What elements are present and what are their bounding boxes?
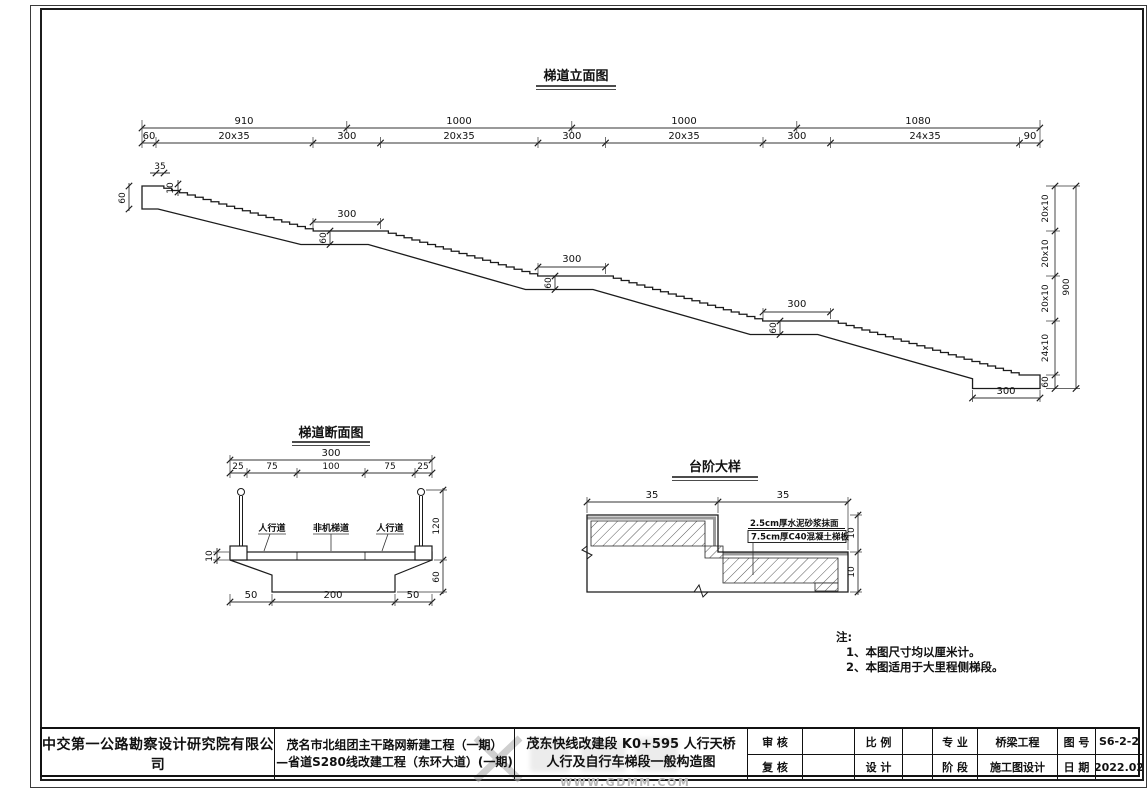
dim-label: 35	[154, 162, 165, 172]
dim-label: 90	[1024, 131, 1037, 142]
field-label-check: 复 核	[747, 754, 802, 779]
callout-label: 2.5cm厚水泥砂浆抹面	[750, 518, 839, 529]
dim-label: 35	[646, 490, 659, 501]
notes-header: 注:	[836, 630, 1056, 645]
lane-label: 人行道	[375, 522, 403, 534]
dim-label: 35	[777, 490, 790, 501]
deck-structure	[230, 546, 432, 592]
dim-label: 50	[245, 590, 258, 601]
dim-label: 1080	[905, 116, 930, 127]
drawing-title-line1: 茂东快线改建段 K0+595 人行天桥	[526, 736, 735, 754]
dim-label: 10	[847, 566, 857, 578]
field-value-drawing-no: S6-2-2	[1095, 729, 1142, 754]
dim-label: 60	[769, 322, 779, 334]
field-label-discipline: 专 业	[932, 729, 977, 754]
project-line1: 茂名市北组团主干路网新建工程（一期）	[286, 737, 502, 754]
dim-label: 100	[322, 462, 339, 472]
dim-label: 300	[562, 254, 581, 265]
stair-profile	[142, 186, 1040, 389]
dim-label: 24x10	[1041, 334, 1051, 363]
drawing-title: 茂东快线改建段 K0+595 人行天桥 人行及自行车梯段一般构造图	[514, 729, 747, 779]
field-label-date: 日 期	[1057, 754, 1095, 779]
notes-block: 注: 1、本图尺寸均以厘米计。 2、本图适用于大里程侧梯段。	[836, 630, 1056, 675]
dim-label: 20x35	[443, 131, 474, 142]
dim-label: 1000	[671, 116, 696, 127]
drawing-canvas: 梯道立面图 910 1000 1000 1080	[0, 0, 1148, 727]
project-line2: —省道S280线改建工程（东环大道）(一期)	[276, 754, 513, 771]
dim-label: 25	[417, 462, 428, 472]
dim-label: 300	[337, 209, 356, 220]
title-block: 中交第一公路勘察设计研究院有限公司 茂名市北组团主干路网新建工程（一期） —省道…	[40, 727, 1140, 777]
dim-label: 25	[232, 462, 243, 472]
dim-label: 60	[544, 277, 554, 289]
field-label-review: 审 核	[747, 729, 802, 754]
field-value-review	[802, 729, 854, 754]
dim-label: 300	[562, 131, 581, 142]
break-mark-bottom	[694, 585, 708, 597]
dim-label: 1000	[446, 116, 471, 127]
field-label-scale: 比 例	[854, 729, 902, 754]
dim-label: 300	[787, 299, 806, 310]
field-value-date: 2022.02	[1095, 754, 1142, 779]
step-detail-right-dims	[850, 512, 862, 595]
note-item: 2、本图适用于大里程侧梯段。	[836, 660, 1056, 675]
lane-label: 非机梯道	[313, 522, 349, 534]
dim-label: 24x35	[909, 131, 940, 142]
elevation-view: 梯道立面图 910 1000 1000 1080	[118, 68, 1080, 402]
drawing-title-line2: 人行及自行车梯段一般构造图	[546, 754, 715, 772]
field-label-stage: 阶 段	[932, 754, 977, 779]
dim-label: 10	[205, 550, 215, 562]
dim-label: 300	[337, 131, 356, 142]
field-value-stage: 施工图设计	[977, 754, 1057, 779]
dim-label: 20x10	[1041, 239, 1051, 268]
lane-leaders	[258, 534, 404, 551]
dim-label: 60	[319, 232, 329, 244]
dim-label: 10	[847, 527, 857, 539]
field-value-check	[802, 754, 854, 779]
dim-label: 20x35	[218, 131, 249, 142]
dim-label: 50	[407, 590, 420, 601]
callout-label: 7.5cm厚C40混凝土梯板	[751, 532, 850, 543]
step-detail-title: 台阶大样	[689, 459, 741, 475]
dim-label: 60	[1041, 376, 1051, 388]
dim-label: 900	[1062, 278, 1072, 295]
field-label-design: 设 计	[854, 754, 902, 779]
cross-section-title: 梯道断面图	[298, 425, 363, 441]
company-name: 中交第一公路勘察设计研究院有限公司	[42, 729, 274, 779]
dim-label: 910	[234, 116, 253, 127]
dim-label: 120	[432, 517, 442, 534]
step-detail-view: 台阶大样 35 35	[582, 459, 862, 597]
field-value-discipline: 桥梁工程	[977, 729, 1057, 754]
field-value-scale	[902, 729, 932, 754]
dim-label: 300	[787, 131, 806, 142]
dim-label: 20x35	[668, 131, 699, 142]
cross-section-view: 梯道断面图 300 25 75 100 75 25	[205, 425, 447, 606]
dim-label: 20x10	[1041, 194, 1051, 223]
elevation-title: 梯道立面图	[543, 68, 608, 84]
dim-label: 60	[432, 571, 442, 583]
drawing-sheet: 梯道立面图 910 1000 1000 1080	[0, 0, 1148, 792]
dim-label: 75	[266, 462, 277, 472]
dim-label: 60	[118, 192, 128, 204]
concrete-slab-hatch-lower	[815, 583, 838, 591]
field-value-design	[902, 754, 932, 779]
dim-label: 300	[996, 386, 1015, 397]
cross-section-side-dims	[213, 487, 447, 595]
note-item: 1、本图尺寸均以厘米计。	[836, 645, 1056, 660]
dim-label: 20x10	[1041, 284, 1051, 313]
field-label-drawing-no: 图 号	[1057, 729, 1095, 754]
lane-label: 人行道	[257, 522, 285, 534]
dim-label: 300	[321, 448, 340, 459]
project-name: 茂名市北组团主干路网新建工程（一期） —省道S280线改建工程（东环大道）(一期…	[274, 729, 514, 779]
dim-label: 200	[323, 590, 342, 601]
dim-label: 75	[384, 462, 395, 472]
dim-label: 60	[143, 131, 156, 142]
dim-label: 10	[166, 182, 176, 194]
